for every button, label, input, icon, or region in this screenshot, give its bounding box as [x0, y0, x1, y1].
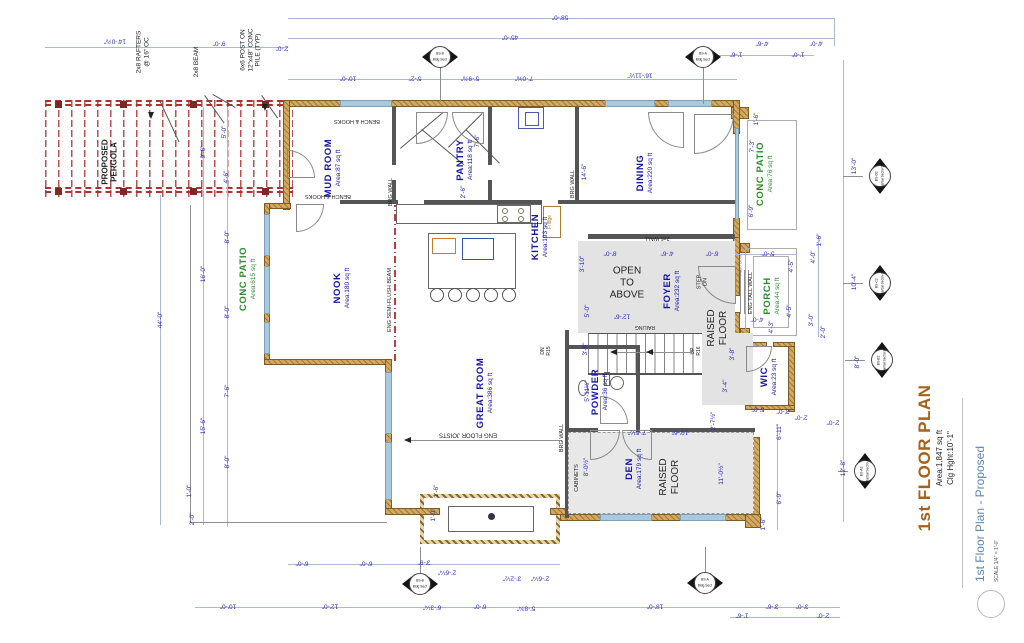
dimension-label: 4'-3" [769, 321, 776, 334]
annotation: BRG WALL [388, 178, 394, 206]
pergola-post [120, 101, 127, 108]
dimension-label: 3'-0" [809, 314, 816, 327]
dimension-label: 3'-9" [418, 558, 431, 565]
dimension-label: 8'-0½" [584, 458, 591, 476]
marker-bubble: BS-A2Partial Sectio A [854, 460, 876, 482]
caption-scale: SCALE 1/4" = 1'-0" [994, 540, 1000, 582]
dimension-label: 3'-8" [583, 343, 590, 356]
dimension-label: 14'-6" [582, 164, 589, 181]
dimension-label: 10'-6" [672, 428, 689, 435]
room-label: GREAT ROOMArea:386 sq ft [476, 358, 494, 429]
dimension-label: 5'-2" [409, 74, 422, 81]
annotation: 2x6 WALL [644, 235, 669, 241]
dimension-label: 9'-0" [213, 39, 226, 46]
room-label: POWDERArea:36 sq ft [591, 369, 609, 415]
dimension-label: 12'-0" [322, 602, 339, 609]
dimension-line [160, 195, 161, 525]
island-sink [462, 238, 494, 260]
exterior-wall [745, 514, 761, 528]
sheet-subtitle: Area:1,847 sq ft Clg Hght:10'-1" [935, 430, 957, 486]
exterior-wall [560, 514, 760, 521]
dimension-label: 11'-0½" [719, 463, 726, 485]
sheet-ceiling: Clg Hght:10'-1" [946, 431, 955, 485]
dimension-label: 8'-0" [225, 456, 232, 469]
dimension-label: 2'-7½" [711, 412, 718, 430]
annotation: BENCH & HOOKS [305, 193, 351, 199]
sheet-area: Area:1,847 sq ft [935, 430, 944, 486]
dimension-label: 6'-0" [360, 559, 373, 566]
dimension-label: 10'-4" [852, 274, 859, 291]
room-label: DENArea:179 sq ft [625, 449, 643, 489]
room-name: NOOK [333, 273, 343, 304]
room-area: Area:220 sq ft [648, 153, 655, 193]
burner-icon [518, 216, 524, 222]
annotation: RAILING [635, 323, 655, 329]
sheet-title: 1st FLOOR PLAN [915, 385, 935, 532]
pergola-beam-bottom [45, 187, 293, 193]
section-marker: BS-A2Partial Sectio A [854, 453, 876, 489]
dimension-label: 8'-0" [225, 231, 232, 244]
dimension-label: 5'-0" [762, 249, 775, 256]
dimension-label: 16'-11½" [627, 71, 652, 78]
dimension-label: 3'-8" [730, 348, 737, 361]
room-name: GREAT ROOM [476, 358, 486, 429]
reference-line [190, 522, 387, 523]
dimension-label: 2'-0" [276, 44, 289, 51]
interior-wall [568, 345, 638, 349]
dimension-label: 10'-0" [340, 74, 357, 81]
dimension-label: 4'-5" [789, 260, 796, 273]
annotation: ENG SEMI-FLUSH BEAM [387, 268, 393, 332]
caption-bullet-icon [977, 590, 1005, 618]
dimension-label: 58'-0" [552, 13, 569, 20]
dimension-label: 12'-6" [614, 312, 631, 319]
dimension-label: 7'-6" [475, 135, 482, 148]
room-name: CONC PATIO [756, 142, 766, 206]
window [680, 514, 726, 521]
dimension-label: 1'-6" [761, 518, 768, 531]
dimension-label: 1'-6" [730, 50, 743, 57]
dimension-line [834, 18, 835, 46]
annotation: 6x6 POST ON 12"x48" CONC PILE (TYP) [240, 28, 263, 71]
pergola-post [120, 188, 127, 195]
arrowhead-icon [646, 349, 653, 355]
room-name: DINING [636, 155, 646, 192]
beam-line [394, 205, 396, 361]
window [385, 372, 392, 434]
dimension-label: 9'-6" [201, 146, 208, 159]
annotation: BRG WALL [570, 170, 576, 198]
window [735, 128, 739, 220]
stool-icon [430, 288, 444, 302]
dimension-label: 2'-0" [817, 611, 830, 618]
marker-bubble: BS-D2Partial Sectio D [869, 165, 891, 187]
dimension-label: 3'-0" [777, 407, 790, 414]
annotation: ENG FLOOR JOISTS [439, 430, 497, 437]
dimension-label: 14'-0⅞" [104, 37, 126, 44]
section-marker: BS-BBldg Sect [422, 46, 458, 68]
dimension-label: 10'-0" [220, 602, 237, 609]
annotation: 2x8 RAFTERS @ 16" OC [135, 31, 150, 74]
door-swing [296, 204, 324, 232]
dimension-label: 2'-0" [795, 413, 808, 420]
room-label: DININGArea:220 sq ft [636, 153, 654, 193]
section-marker: BS-C2Partial Sectio C [869, 265, 891, 301]
reference-line [408, 440, 562, 441]
window [340, 100, 392, 107]
room-name: DEN [625, 458, 635, 480]
dimension-label: 8'-0" [225, 306, 232, 319]
dimension-label: 1'-6" [736, 611, 749, 618]
stool-icon [448, 288, 462, 302]
dimension-label: 12'-8" [841, 460, 848, 477]
room-name: WIC [760, 367, 770, 387]
room-name: POWDER [591, 369, 601, 415]
pantry-appliance [518, 107, 544, 129]
room-area: Area:36 sq ft [603, 374, 610, 411]
dimension-label: 2'-0" [827, 418, 840, 425]
dimension-label: 2'-0" [821, 326, 828, 339]
arrowhead-icon [610, 349, 617, 355]
room-name: FOYER [663, 273, 673, 309]
dimension-label: 2'-0" [190, 513, 197, 526]
pergola-rafters [45, 97, 293, 200]
dimension-line [777, 425, 778, 530]
room-name: KITCHEN [531, 214, 541, 260]
pergola-post [190, 188, 197, 195]
section-marker: BS-BBldg Sect [402, 573, 438, 595]
room-name: CONC PATIO [239, 247, 249, 311]
arrowhead-icon [262, 104, 268, 111]
room-label: PANTRYArea:118 sq ft [456, 139, 474, 181]
stool-icon [484, 288, 498, 302]
dimension-label: 3'-4" [723, 380, 730, 393]
sheet-caption: 1st Floor Plan - Proposed SCALE 1/4" = 1… [973, 446, 1001, 582]
room-area: Area:179 sq ft [637, 449, 644, 489]
floor-plan-canvas: 1st FLOOR PLAN Area:1,847 sq ft Clg Hght… [0, 0, 1024, 643]
annotation: BRG WALL [559, 424, 565, 452]
marker-bubble: BS-BBldg Sect [429, 46, 451, 68]
annotation: PROPOSED PERGOLA [101, 139, 120, 184]
annotation: RAISED FLOOR [658, 458, 682, 495]
dimension-label: 3'-0" [796, 602, 809, 609]
interior-wall [392, 107, 396, 165]
dimension-label: 5'-0" [585, 305, 592, 318]
stool-icon [502, 288, 516, 302]
exterior-wall [264, 359, 392, 365]
interior-wall [636, 345, 640, 432]
dimension-label: 6'-11" [777, 424, 784, 440]
dimension-label: 3'-10" [580, 256, 587, 273]
reference-line [703, 64, 704, 104]
dimension-line [818, 235, 819, 337]
interior-wall [558, 200, 735, 204]
dimension-label: 1'-6" [434, 485, 441, 498]
dimension-label: 6'-0" [474, 602, 487, 609]
annotation: Patio Door [737, 254, 742, 275]
annotation: ENG TALL WALL [748, 272, 754, 314]
arrowhead-icon [404, 437, 411, 443]
window [605, 100, 655, 107]
room-label: WICArea:23 sq ft [760, 359, 778, 396]
dimension-label: 6'-9" [777, 492, 784, 505]
dimension-label: 7'-0⅝" [515, 74, 533, 81]
dimension-label: 4'-6" [756, 39, 769, 46]
pergola-post [55, 101, 62, 108]
room-name: MUD ROOM [324, 139, 334, 198]
room-label: CONC PATIOArea:76 sq ft [756, 142, 774, 206]
title-divider [962, 398, 963, 588]
dimension-label: 5'-9⅞" [461, 74, 479, 81]
stool-icon [466, 288, 480, 302]
room-name: PANTRY [456, 139, 466, 181]
reference-line [440, 68, 441, 102]
room-area: Area:615 sq ft [251, 259, 258, 299]
reference-line [843, 176, 863, 177]
room-label: MUD ROOMArea:87 sq ft [324, 139, 342, 198]
room-label: PORCHArea:44 sq ft [763, 277, 781, 314]
section-marker: BS-ABldg Sect [687, 572, 723, 594]
dimension-line [843, 60, 844, 522]
dimension-label: 5'-0" [222, 126, 229, 139]
section-marker: BS-D2Partial Sectio D [869, 158, 891, 194]
dimension-label: 3'-6" [766, 602, 779, 609]
dimension-label: 8'-0" [855, 356, 862, 369]
dimension-label: 1'-0" [792, 50, 805, 57]
window [385, 442, 392, 500]
annotation: 2x8 BEAM [193, 47, 201, 78]
annotation: OPEN TO ABOVE [610, 265, 644, 300]
window [668, 100, 712, 107]
pergola-post [262, 188, 269, 195]
dimension-label: 6'-0" [296, 559, 309, 566]
door-swing [694, 114, 734, 154]
dimension-label: 8'-0" [604, 249, 617, 256]
reference-line [740, 270, 741, 314]
marker-bubble: BS-ABldg Sect [694, 572, 716, 594]
dimension-line [203, 107, 204, 525]
burner-icon [518, 208, 524, 214]
fireplace-vent-icon [488, 513, 495, 520]
room-area: Area:232 sq ft [675, 271, 682, 311]
marker-bubble: BS-ABldg Sect [692, 46, 714, 68]
annotation: STEP DN [697, 275, 710, 289]
dimension-label: 7'-6" [225, 385, 232, 398]
reference-line [190, 205, 191, 523]
room-area: Area:118 sq ft [468, 140, 475, 180]
section-marker: BS-B2Partial Sectio B [871, 342, 893, 378]
dimension-label: 6'-9" [749, 205, 756, 218]
annotation: BENCH & HOOKS [334, 118, 380, 124]
island-appliance [432, 238, 456, 254]
marker-bubble: BS-BBldg Sect [409, 573, 431, 595]
dimension-label: 1'-6" [754, 113, 761, 126]
pergola-post [190, 101, 197, 108]
dimension-label: 5'-8¾" [517, 604, 535, 611]
dimension-label: 4'-0" [751, 315, 764, 322]
dimension-label: 2'-6¼" [531, 574, 549, 581]
section-marker: BS-ABldg Sect [685, 46, 721, 68]
annotation: Fridge [548, 215, 554, 229]
dimension-label: 15'-6" [201, 418, 208, 435]
marker-bubble: BS-C2Partial Sectio C [869, 272, 891, 294]
annotation: RAISED FLOOR [706, 309, 730, 346]
dimension-label: 7'-5½" [628, 428, 646, 435]
marker-bubble: BS-B2Partial Sectio B [871, 349, 893, 371]
room-area: Area:23 sq ft [772, 359, 779, 396]
door-swing [416, 112, 448, 144]
burner-icon [502, 216, 508, 222]
dimension-label: 6'-0" [706, 249, 719, 256]
dimension-label: 1'-0" [187, 485, 194, 498]
room-label: CONC PATIOArea:615 sq ft [239, 247, 257, 311]
dimension-label: 5'-0" [752, 405, 765, 412]
pergola-post [55, 188, 62, 195]
interior-wall [424, 200, 542, 204]
room-label: FOYERArea:232 sq ft [663, 271, 681, 311]
door-swing [648, 112, 684, 148]
window [264, 322, 270, 354]
annotation: CABINETS [574, 464, 580, 492]
arrowhead-icon [148, 112, 154, 119]
room-area: Area:76 sq ft [768, 156, 775, 193]
door-swing [287, 150, 315, 178]
window [264, 214, 270, 256]
exterior-wall [753, 437, 760, 521]
dimension-label: 4'-6" [224, 171, 231, 184]
exterior-wall [788, 342, 795, 412]
room-area: Area:44 sq ft [775, 278, 782, 315]
room-area: Area:180 sq ft [345, 268, 352, 308]
room-area: Area:386 sq ft [488, 373, 495, 413]
annotation: UP R16 [691, 346, 703, 355]
dimension-label: 4'-6" [661, 249, 674, 256]
room-label: NOOKArea:180 sq ft [333, 268, 351, 308]
dimension-label: 13'-0" [852, 158, 859, 175]
window [264, 266, 270, 314]
dimension-label: 16'-0" [201, 266, 208, 283]
dimension-label: 44'-0" [158, 312, 165, 329]
dimension-label: 1'-6" [817, 234, 824, 247]
dimension-label: 1'-0" [431, 509, 438, 522]
burner-icon [502, 208, 508, 214]
toilet-icon [610, 376, 624, 390]
caption-text: 1st Floor Plan - Proposed [973, 446, 987, 582]
dimension-label: 3'-2½" [503, 574, 521, 581]
dimension-label: 2'-6" [461, 186, 468, 199]
room-area: Area:87 sq ft [336, 150, 343, 187]
dimension-label: 4'-0" [810, 39, 823, 46]
dimension-label: 45'-0" [502, 33, 519, 40]
pergola-beam-top [45, 100, 293, 106]
fireplace [420, 494, 560, 544]
dimension-label: 2'-6¼" [438, 568, 456, 575]
dimension-label: 4'-0" [811, 251, 818, 264]
dimension-label: 18'-0" [647, 602, 664, 609]
room-name: PORCH [763, 277, 773, 314]
annotation: DN R15 [541, 346, 553, 355]
window [600, 514, 652, 521]
exterior-wall [773, 342, 795, 347]
dimension-label: 6'-3¼" [423, 603, 441, 610]
dimension-label: 4'-5" [787, 305, 794, 318]
